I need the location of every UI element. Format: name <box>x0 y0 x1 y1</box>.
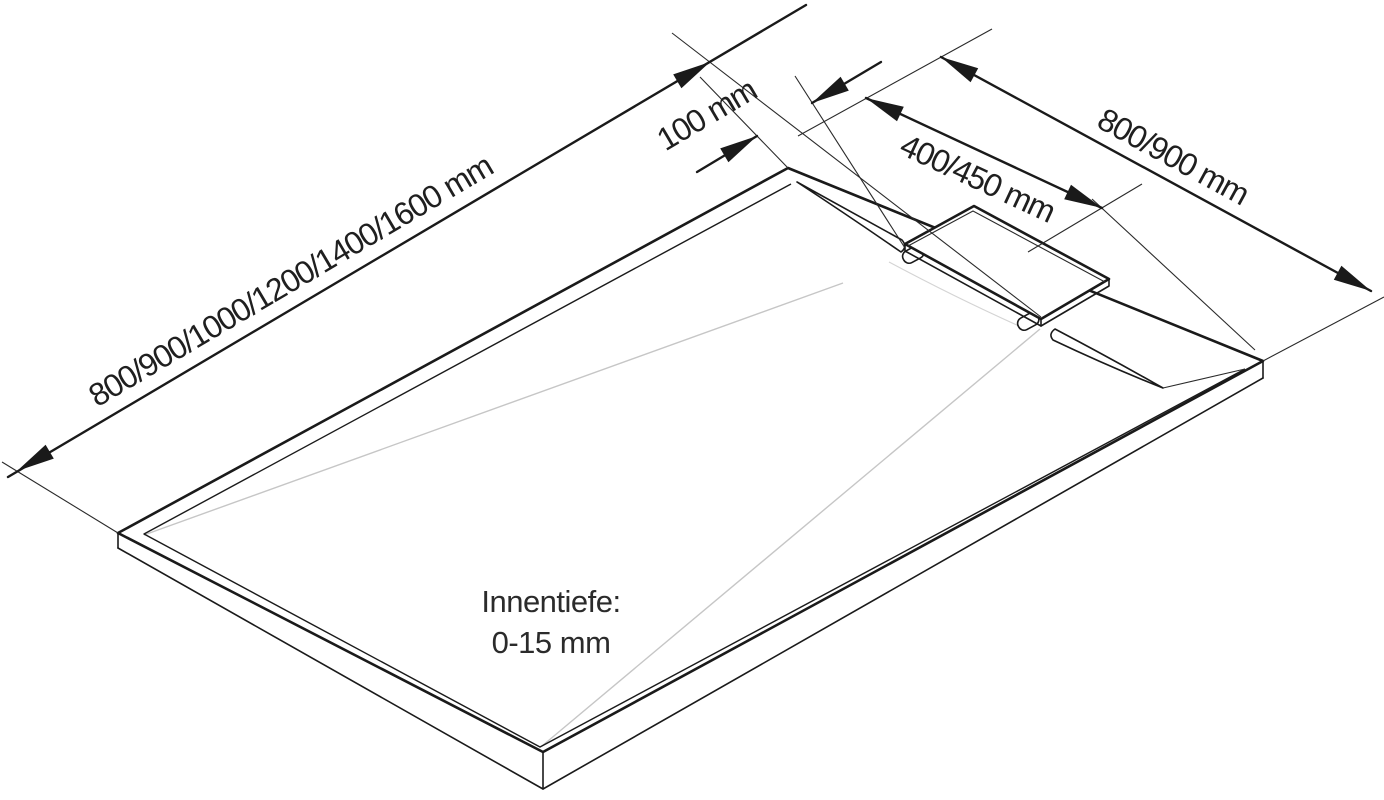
ext-line-left-corner <box>2 462 118 533</box>
technical-drawing-page: 800/900/1000/1200/1400/1600 mm 100 mm 40… <box>0 0 1384 800</box>
arrowhead <box>17 445 54 471</box>
shower-tray-diagram: 800/900/1000/1200/1400/1600 mm 100 mm 40… <box>0 0 1384 800</box>
tray-outer-face <box>118 168 1263 752</box>
arrowhead <box>1334 266 1371 291</box>
arrowhead <box>1064 185 1102 208</box>
arrowhead <box>673 62 710 88</box>
annotation-depth-line2: 0-15 mm <box>492 625 611 660</box>
annotation-depth-line1: Innentiefe: <box>481 584 620 619</box>
dimension-width-label: 800/900 mm <box>1092 101 1255 212</box>
arrowhead <box>812 77 849 103</box>
arrowhead <box>866 98 904 121</box>
arrowhead <box>720 136 757 162</box>
arrowhead <box>941 57 978 82</box>
ext-line-edge-extension <box>1263 297 1384 361</box>
ext-line-upper-shared <box>798 29 992 136</box>
